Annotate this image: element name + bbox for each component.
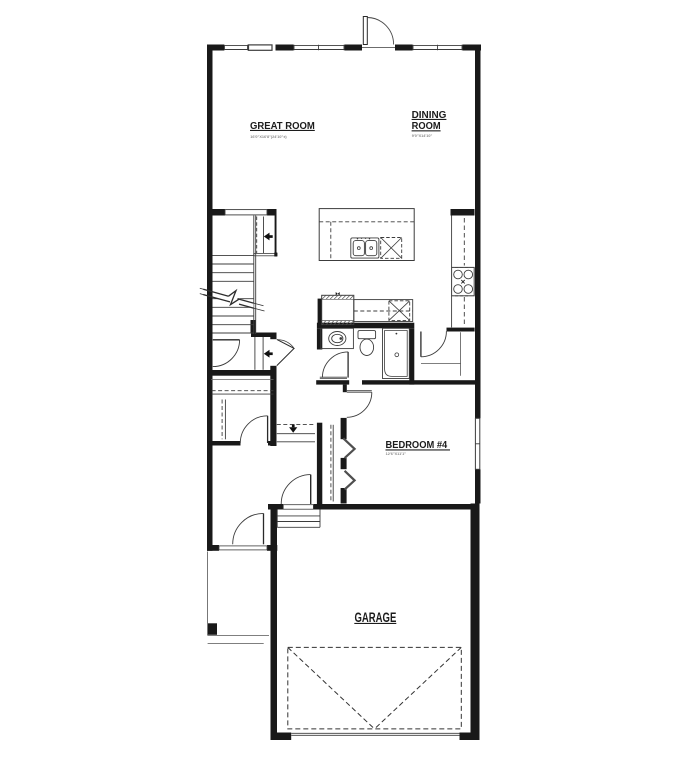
svg-text:12'6"X11'1": 12'6"X11'1" bbox=[386, 452, 407, 456]
svg-text:BEDROOM #4: BEDROOM #4 bbox=[386, 439, 448, 451]
svg-text:9'0"X14'10": 9'0"X14'10" bbox=[412, 134, 433, 138]
svg-text:16'0"X16'8"(24'10"±): 16'0"X16'8"(24'10"±) bbox=[250, 135, 287, 139]
svg-text:GARAGE: GARAGE bbox=[355, 610, 397, 625]
